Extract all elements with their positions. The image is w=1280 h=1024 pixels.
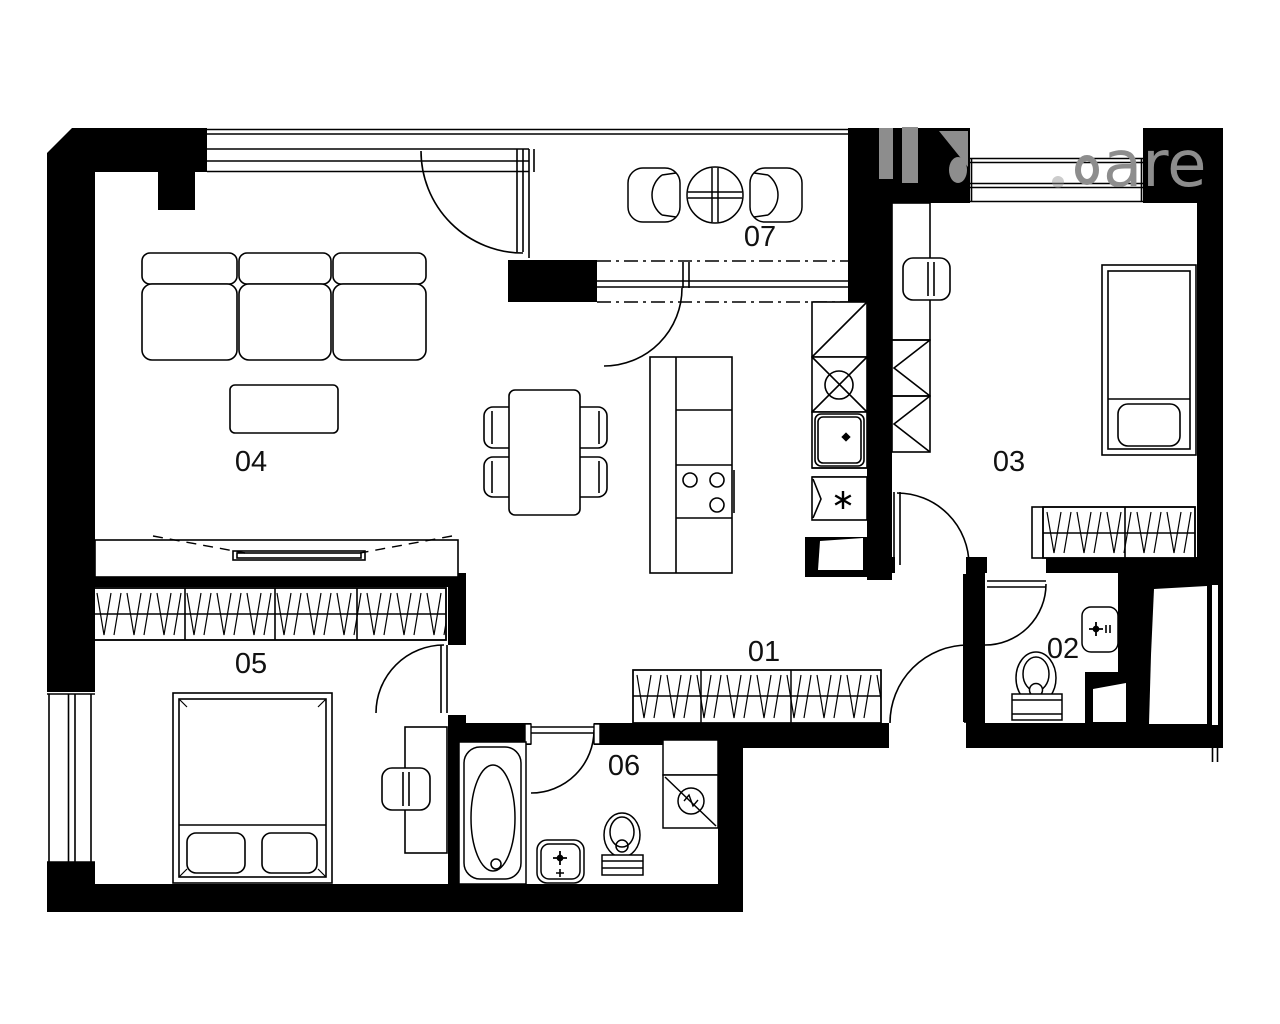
wc-door	[985, 581, 1046, 645]
balcony-round-table	[687, 167, 743, 223]
room-label-04: 04	[235, 446, 267, 478]
double-bed	[173, 693, 332, 883]
room-label-07: 07	[744, 221, 776, 253]
sofa	[142, 253, 426, 360]
balcony-door	[421, 149, 523, 253]
bathtub	[459, 742, 526, 884]
watermark-text: are	[1103, 128, 1207, 202]
desk-chair	[382, 768, 430, 810]
bedroom-05-window	[47, 694, 95, 862]
room-label-01: 01	[748, 636, 780, 668]
room-label-06: 06	[608, 750, 640, 782]
kitchen-island-cooktop	[650, 357, 734, 573]
pillow	[1118, 404, 1180, 446]
wardrobe-05	[93, 588, 446, 640]
cabinet	[892, 340, 930, 396]
dining-table-with-chairs	[484, 390, 607, 515]
kitchen-balcony-door	[604, 288, 682, 366]
balcony-chair-right	[750, 168, 802, 222]
balcony-sill	[597, 261, 848, 302]
floor-plan-canvas: 04 07 03 02 01 05 06 are	[0, 0, 1280, 1024]
kitchen-counter	[812, 302, 867, 520]
washing-machine	[663, 740, 718, 828]
floor-plan-page: 04 07 03 02 01 05 06 are	[0, 0, 1280, 1024]
bedroom-05-furniture	[93, 588, 447, 883]
wc-washbasin	[1082, 607, 1118, 652]
single-bed	[1102, 265, 1196, 455]
room-03-door	[894, 492, 969, 565]
bath-washbasin	[537, 840, 584, 883]
room-label-02: 02	[1047, 633, 1079, 665]
balcony-chair-left	[628, 168, 680, 222]
tv-sideboard	[95, 536, 458, 577]
bath-toilet	[602, 813, 643, 875]
room-label-03: 03	[993, 446, 1025, 478]
room-label-05: 05	[235, 648, 267, 680]
coffee-table	[230, 385, 338, 433]
bedroom-05-door	[376, 645, 447, 713]
entrance-door	[890, 645, 971, 723]
balcony-furniture	[628, 167, 802, 223]
hallway-wardrobe	[633, 670, 881, 723]
wardrobe-03	[1032, 507, 1195, 558]
desk-chair	[903, 258, 950, 300]
